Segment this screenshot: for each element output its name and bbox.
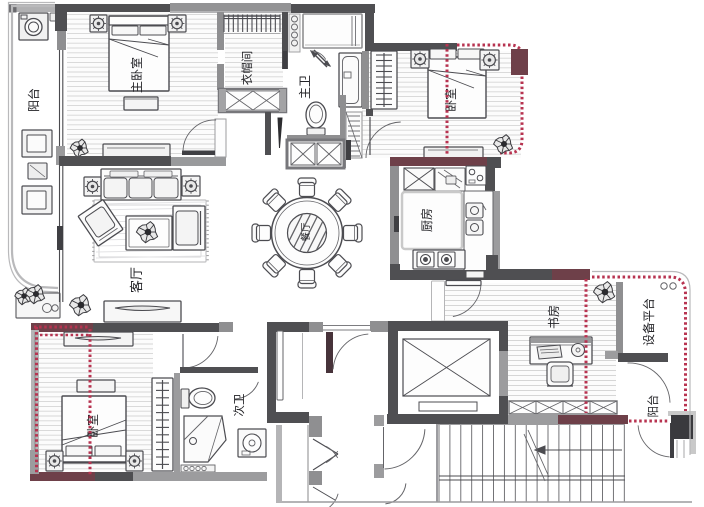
svg-text:卧室: 卧室 — [85, 414, 100, 438]
svg-text:阳台: 阳台 — [26, 88, 41, 112]
svg-text:设备平台: 设备平台 — [641, 298, 656, 346]
svg-text:书房: 书房 — [546, 305, 561, 329]
svg-text:客厅: 客厅 — [129, 267, 144, 293]
svg-text:厨房: 厨房 — [419, 208, 434, 232]
svg-text:主卫: 主卫 — [298, 75, 312, 99]
svg-text:阳台: 阳台 — [646, 395, 660, 418]
svg-text:餐厅: 餐厅 — [300, 222, 312, 242]
svg-text:衣帽间: 衣帽间 — [240, 51, 254, 86]
svg-text:次卫: 次卫 — [232, 394, 246, 417]
svg-text:卧室: 卧室 — [443, 88, 458, 112]
svg-text:主卧室: 主卧室 — [129, 57, 144, 93]
